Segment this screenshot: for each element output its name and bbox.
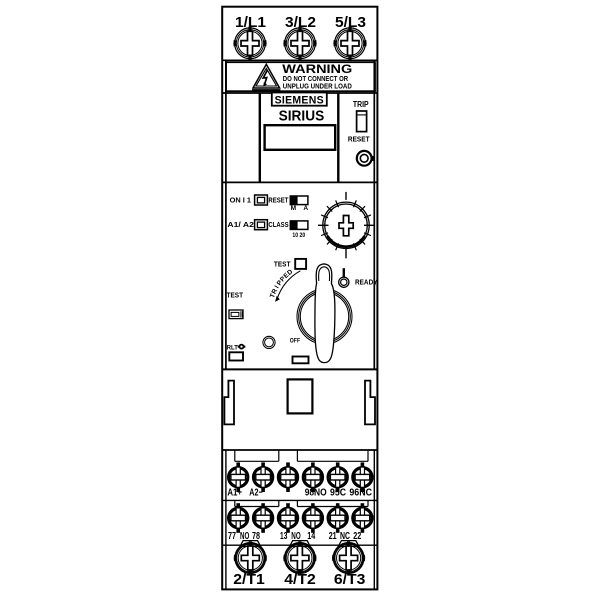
svg-text:6/T3: 6/T3 <box>334 572 366 588</box>
svg-text:95C: 95C <box>330 487 346 498</box>
svg-text:2/T1: 2/T1 <box>233 572 265 588</box>
svg-text:A1/ A2: A1/ A2 <box>227 220 254 229</box>
svg-text:SIEMENS: SIEMENS <box>275 94 324 106</box>
svg-text:98NO: 98NO <box>305 487 327 498</box>
svg-text:A1+: A1+ <box>227 487 242 498</box>
svg-text:RESET: RESET <box>348 134 370 143</box>
svg-text:13: 13 <box>280 531 288 542</box>
svg-text:TEST: TEST <box>274 260 291 269</box>
svg-text:4/T2: 4/T2 <box>284 572 316 588</box>
svg-text:SIRIUS: SIRIUS <box>279 108 325 125</box>
svg-text:96NC: 96NC <box>349 487 372 498</box>
svg-text:OFF: OFF <box>290 338 300 345</box>
svg-text:10 20: 10 20 <box>292 232 305 239</box>
svg-text:14: 14 <box>307 531 315 542</box>
svg-text:A: A <box>303 205 308 212</box>
svg-text:TRIP: TRIP <box>353 100 369 109</box>
svg-text:UNPLUG UNDER LOAD: UNPLUG UNDER LOAD <box>283 81 352 90</box>
svg-text:TEST: TEST <box>227 291 244 300</box>
svg-text:RESET: RESET <box>268 196 288 205</box>
svg-text:77: 77 <box>228 531 236 542</box>
svg-text:M: M <box>291 205 297 212</box>
svg-text:READY: READY <box>355 277 378 286</box>
svg-text:RLT: RLT <box>227 344 239 351</box>
svg-text:ON I 1: ON I 1 <box>230 196 252 205</box>
svg-text:21: 21 <box>329 531 337 542</box>
svg-text:CLASS: CLASS <box>268 220 288 229</box>
svg-text:A2−: A2− <box>249 487 263 498</box>
